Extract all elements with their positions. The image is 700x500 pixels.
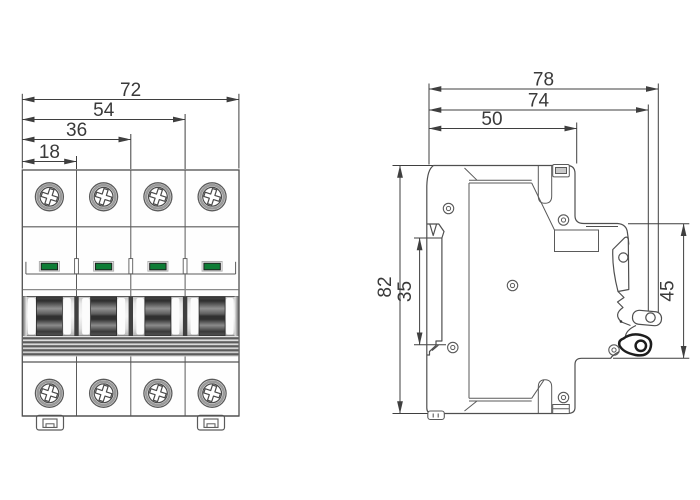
- screw-icon: [90, 183, 118, 211]
- sealing-tab-hole: [646, 313, 655, 322]
- rivet-icon: [507, 280, 517, 290]
- status-indicator: [39, 262, 59, 272]
- dim-label-35: 35: [395, 281, 416, 302]
- dim-label-45: 45: [657, 280, 678, 301]
- din-clip: [198, 415, 225, 430]
- dim-label-18: 18: [39, 142, 60, 163]
- toggle-handle: [145, 297, 171, 335]
- dimension-drawing-page: 72 54 36 18: [0, 0, 700, 500]
- rivet-icon: [448, 342, 458, 352]
- lever-off-position: [619, 334, 651, 355]
- vent-stripes: [23, 336, 239, 357]
- dim-label-50: 50: [481, 109, 502, 130]
- dim-label-36: 36: [66, 120, 87, 141]
- dim-label-54: 54: [93, 100, 115, 121]
- status-indicator: [148, 262, 168, 272]
- lever-arm: [613, 237, 629, 291]
- side-toggle-lever: [611, 237, 662, 358]
- toggle-handle: [36, 297, 62, 335]
- screw-icon: [144, 183, 172, 211]
- side-extension-lines: [393, 84, 690, 414]
- technical-drawing: 72 54 36 18: [0, 0, 700, 500]
- screw-icon: [198, 379, 226, 407]
- screw-icon: [198, 183, 226, 211]
- dim-label-78: 78: [533, 69, 554, 90]
- status-indicator: [202, 262, 222, 272]
- dim-label-72: 72: [120, 80, 141, 101]
- din-clip-foot: [428, 411, 445, 420]
- pivot-dot: [620, 320, 623, 323]
- side-dimension-lines: [400, 89, 684, 414]
- screw-icon: [35, 183, 63, 211]
- top-slider-tab-inner: [556, 168, 567, 174]
- dim-label-74: 74: [528, 90, 550, 111]
- terminal-box: [555, 230, 599, 252]
- screw-icon: [90, 379, 118, 407]
- screw-icon: [35, 379, 63, 407]
- rivet-icon: [558, 392, 568, 402]
- toggle-handle: [199, 297, 225, 335]
- lever-hole: [619, 253, 628, 262]
- rivet-icon: [558, 215, 568, 225]
- rivet-icon: [443, 203, 453, 213]
- din-clip: [37, 415, 64, 430]
- side-body-details: [465, 165, 599, 414]
- side-body-outline: [427, 166, 629, 414]
- front-view: 72 54 36 18: [22, 80, 239, 430]
- toggle-handle: [91, 297, 117, 335]
- toggle-band: [23, 290, 239, 336]
- top-slot: [538, 166, 551, 203]
- dim-label-82: 82: [375, 276, 396, 297]
- rivet-icon: [609, 345, 619, 355]
- status-indicator: [94, 262, 114, 272]
- side-view: 78 74 50 82 35 45: [375, 69, 690, 419]
- screw-icon: [144, 379, 172, 407]
